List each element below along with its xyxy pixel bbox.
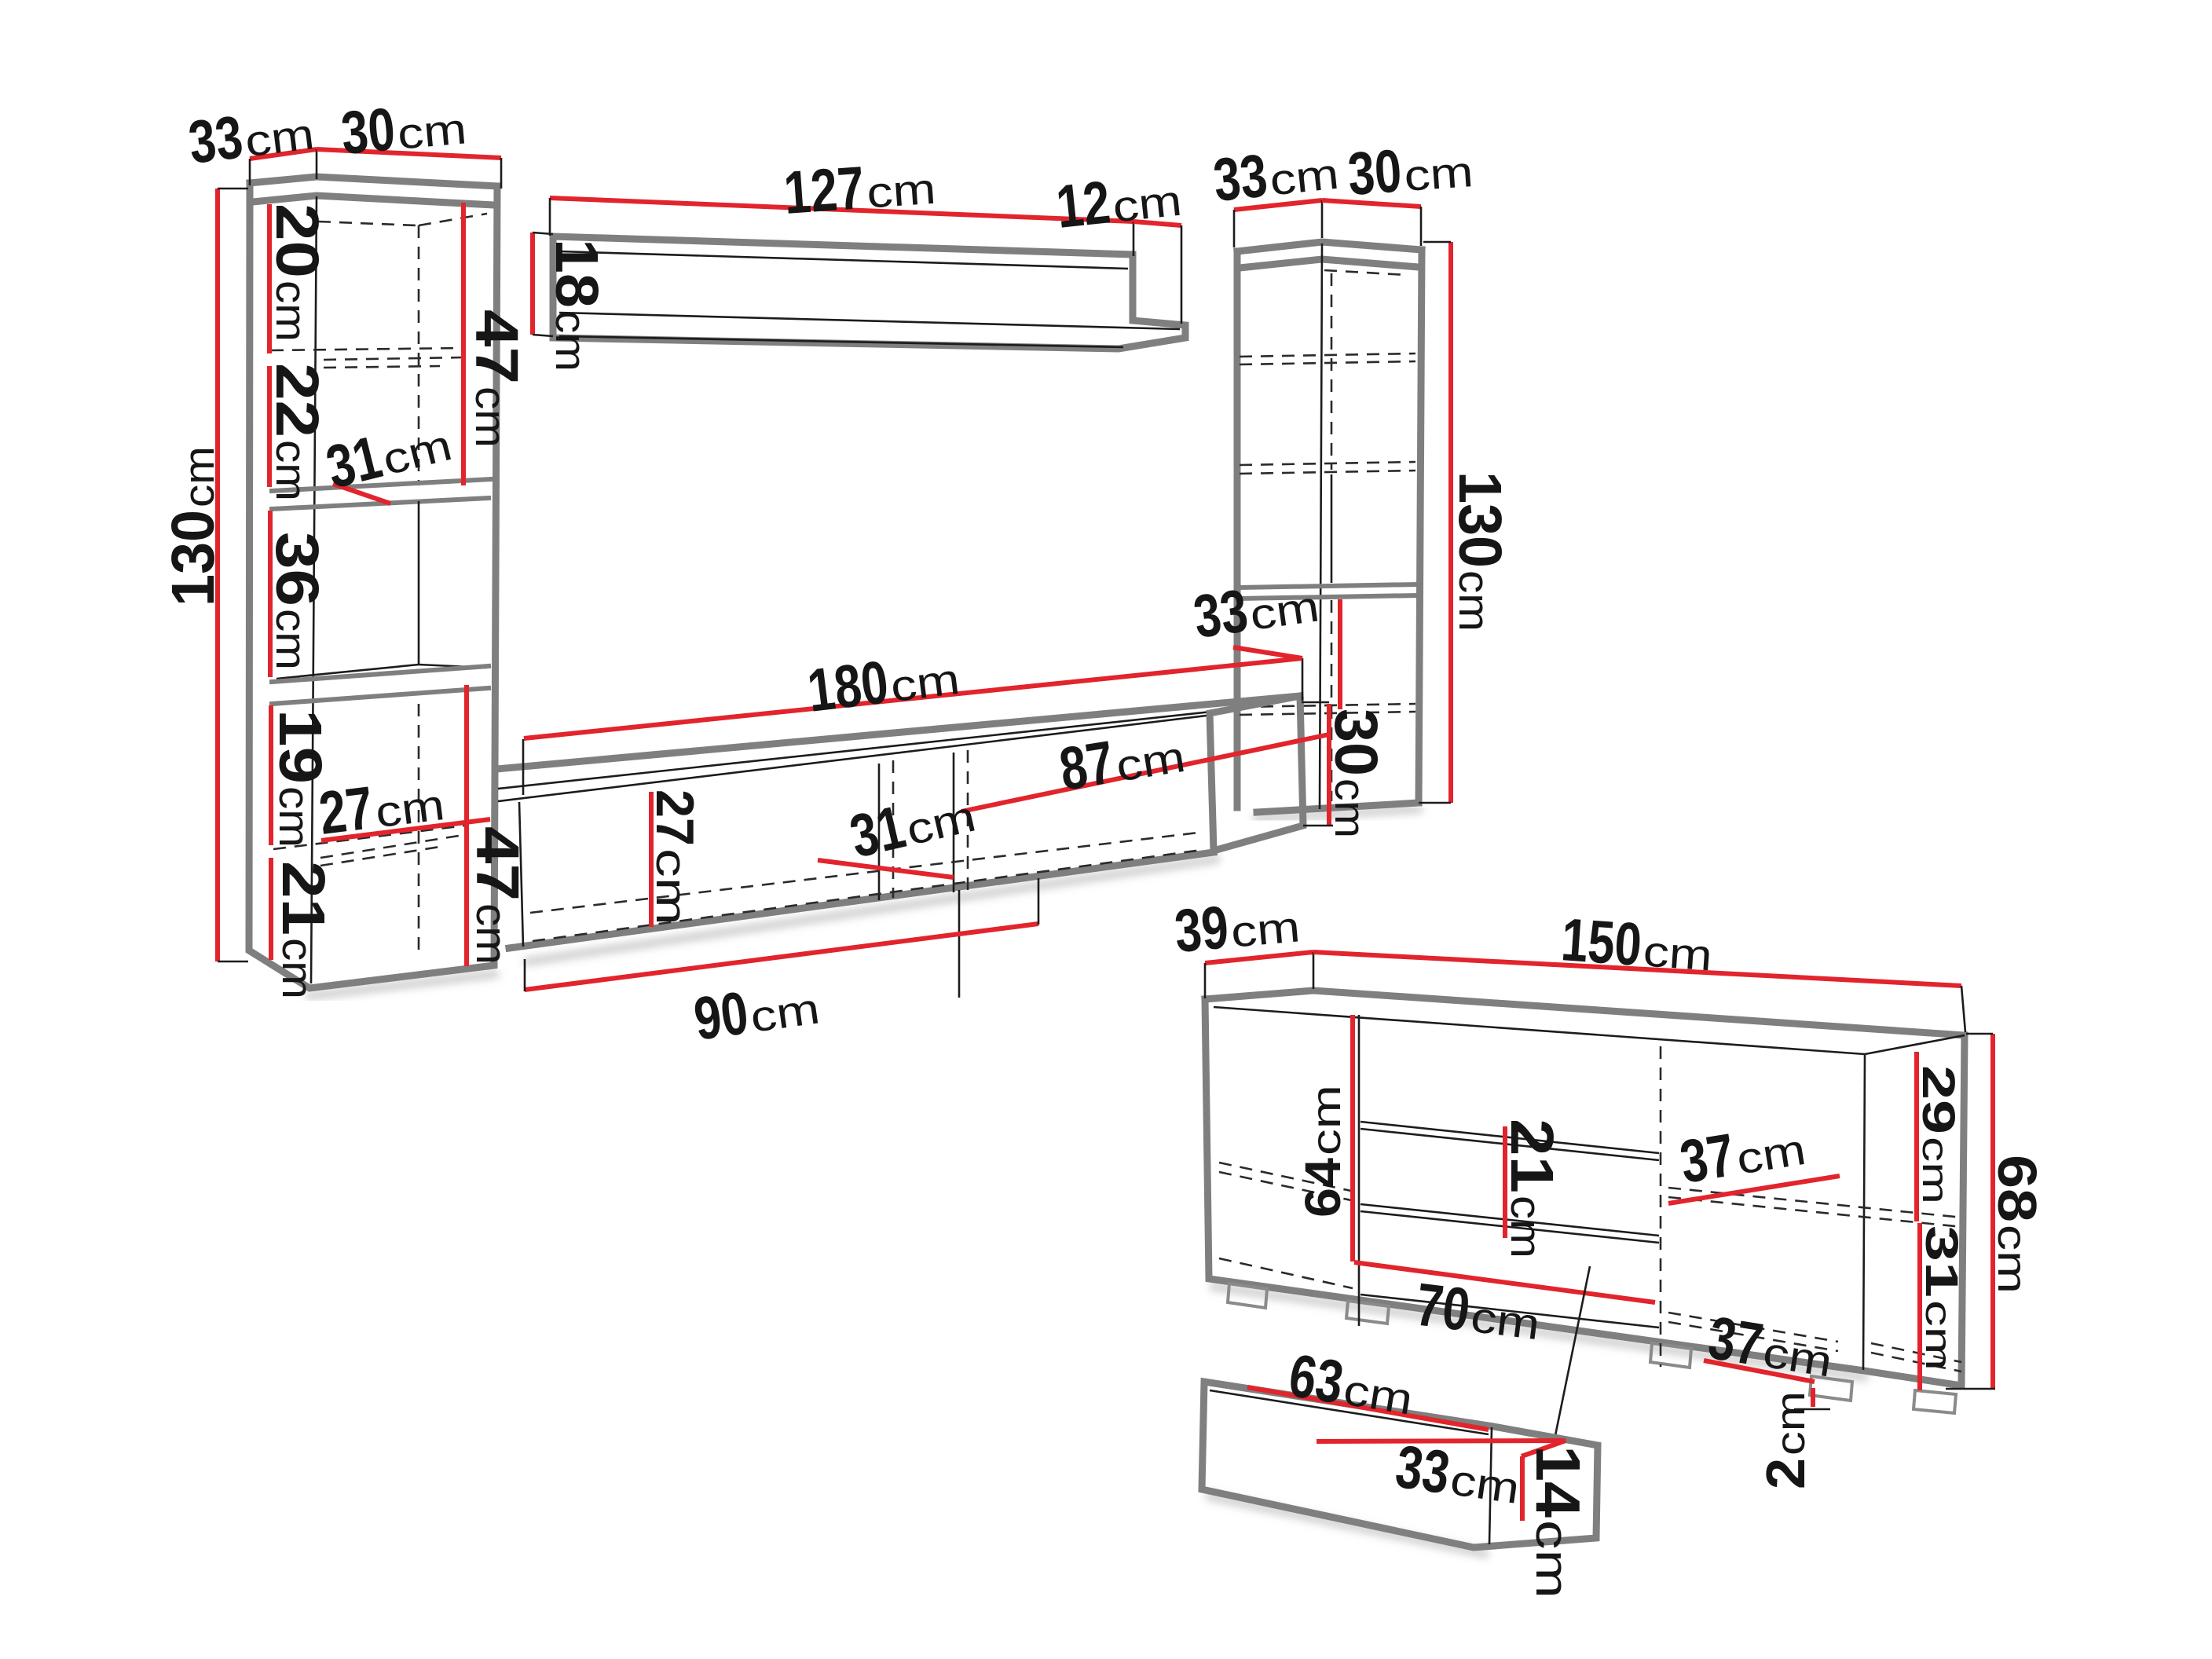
svg-text:20: 20: [263, 203, 331, 278]
svg-text:cm: cm: [1918, 1300, 1959, 1371]
svg-text:cm: cm: [1304, 1085, 1350, 1155]
svg-text:47: 47: [463, 309, 530, 384]
svg-text:cm: cm: [547, 310, 595, 372]
svg-text:cm: cm: [1326, 778, 1375, 838]
svg-text:cm: cm: [174, 446, 223, 507]
svg-text:18: 18: [543, 239, 610, 308]
svg-text:cm: cm: [1448, 1455, 1523, 1513]
svg-text:39: 39: [1172, 893, 1231, 965]
svg-text:64: 64: [1295, 1158, 1351, 1218]
svg-text:63: 63: [1284, 1342, 1348, 1417]
svg-text:37: 37: [1704, 1304, 1767, 1379]
svg-text:cm: cm: [1502, 1196, 1551, 1258]
svg-text:cm: cm: [1229, 902, 1302, 956]
svg-text:cm: cm: [1267, 149, 1341, 205]
svg-text:cm: cm: [865, 164, 937, 218]
svg-text:cm: cm: [1915, 1137, 1956, 1204]
svg-text:cm: cm: [467, 386, 515, 448]
svg-text:180: 180: [804, 648, 892, 725]
svg-text:33: 33: [1189, 577, 1251, 651]
svg-text:30: 30: [1346, 137, 1404, 208]
svg-text:cm: cm: [242, 109, 317, 166]
svg-text:cm: cm: [267, 440, 316, 501]
svg-text:130: 130: [1446, 471, 1514, 568]
svg-text:127: 127: [782, 154, 866, 227]
svg-text:cm: cm: [1642, 926, 1714, 980]
svg-text:cm: cm: [1247, 581, 1322, 639]
svg-text:27: 27: [316, 774, 377, 848]
svg-text:37: 37: [1675, 1121, 1739, 1196]
svg-text:29: 29: [1913, 1065, 1964, 1134]
svg-text:cm: cm: [467, 903, 516, 965]
svg-text:cm: cm: [1768, 1391, 1814, 1456]
svg-text:21: 21: [269, 861, 337, 936]
svg-text:cm: cm: [1110, 176, 1184, 232]
svg-text:cm: cm: [270, 786, 319, 848]
svg-text:90: 90: [690, 979, 752, 1053]
svg-text:cm: cm: [888, 654, 962, 711]
svg-text:19: 19: [266, 709, 334, 784]
svg-text:cm: cm: [267, 280, 316, 342]
svg-text:cm: cm: [1468, 1292, 1543, 1349]
svg-text:33: 33: [1210, 141, 1271, 214]
svg-text:130: 130: [159, 510, 227, 606]
svg-text:21: 21: [1498, 1119, 1566, 1193]
svg-text:30: 30: [1322, 709, 1390, 776]
svg-text:68: 68: [1987, 1155, 2048, 1222]
svg-text:36: 36: [263, 532, 331, 606]
svg-text:cm: cm: [395, 104, 468, 158]
svg-text:cm: cm: [267, 609, 316, 670]
svg-text:70: 70: [1412, 1271, 1474, 1345]
svg-text:cm: cm: [747, 983, 822, 1042]
svg-text:31: 31: [1916, 1225, 1967, 1298]
svg-text:14: 14: [1523, 1445, 1593, 1518]
svg-text:22: 22: [263, 363, 331, 438]
svg-text:12: 12: [1053, 168, 1114, 241]
svg-text:33: 33: [1392, 1433, 1454, 1507]
svg-text:cm: cm: [1450, 570, 1499, 632]
svg-text:87: 87: [1055, 728, 1119, 804]
svg-text:150: 150: [1559, 906, 1644, 979]
svg-text:cm: cm: [372, 780, 447, 837]
svg-text:cm: cm: [1526, 1520, 1577, 1599]
svg-text:cm: cm: [1402, 147, 1474, 200]
svg-text:33: 33: [185, 103, 247, 177]
svg-text:cm: cm: [273, 938, 322, 999]
svg-text:cm: cm: [1989, 1225, 2034, 1294]
svg-text:2: 2: [1755, 1458, 1816, 1489]
svg-text:30: 30: [339, 95, 397, 167]
svg-text:27: 27: [645, 789, 705, 846]
svg-text:cm: cm: [647, 848, 696, 925]
